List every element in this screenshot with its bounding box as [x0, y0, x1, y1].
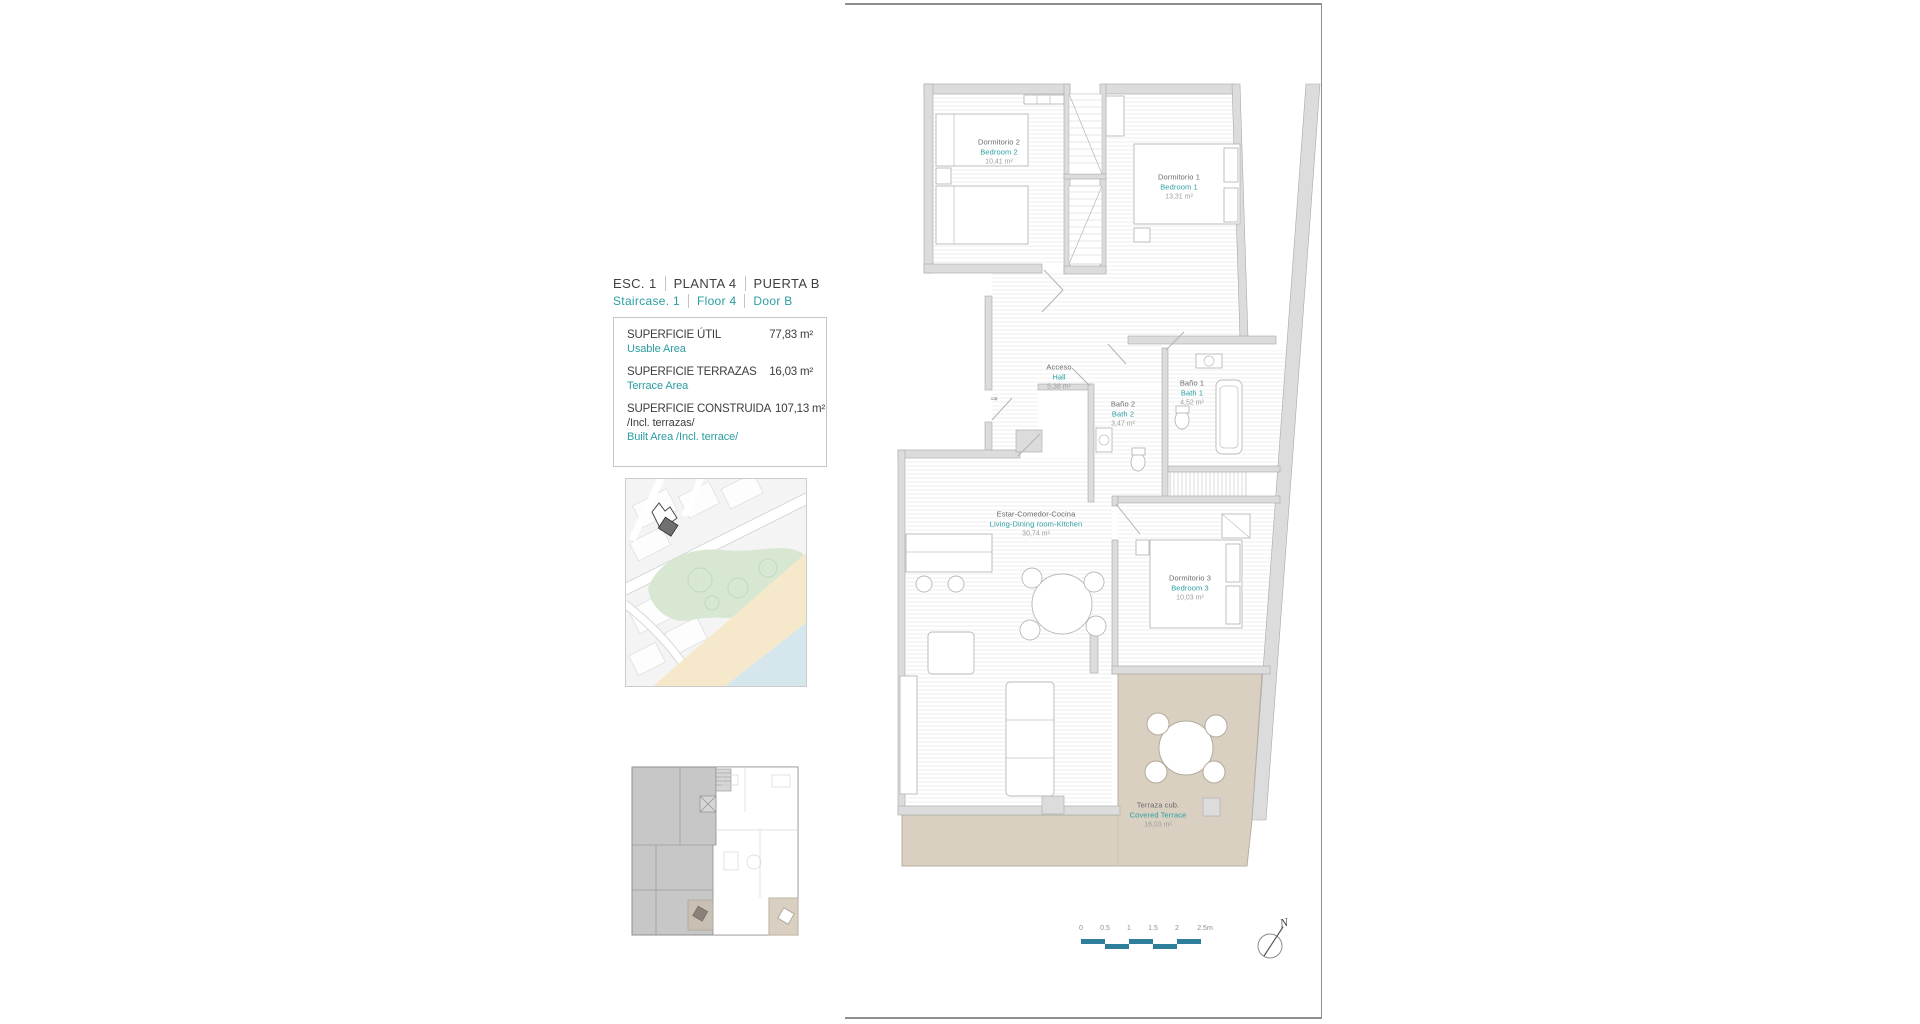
key-plan-graphics	[632, 767, 798, 935]
title-floor-en: Floor 4	[688, 294, 736, 308]
map-graphics	[620, 473, 812, 690]
title-staircase-en: Staircase. 1	[613, 294, 680, 308]
terrace-area-label: SUPERFICIE TERRAZAS	[627, 366, 757, 378]
built-area-sublabel-en: Built Area /Incl. terrace/	[627, 431, 813, 443]
terrace-area-value: 16,03 m²	[769, 366, 813, 378]
built-area-label: SUPERFICIE CONSTRUIDA	[627, 403, 771, 415]
scale-bar-segment	[1153, 944, 1177, 949]
page-title-english: Staircase. 1Floor 4Door B	[613, 294, 873, 308]
entrance-arrow-icon: ⇒	[990, 394, 998, 405]
scale-tick-label: 0	[1079, 925, 1083, 932]
scale-tick-label: 1	[1127, 925, 1131, 932]
usable-area-row: SUPERFICIE ÚTIL 77,83 m² Usable Area	[627, 329, 813, 355]
sheet-border-bottom	[845, 1017, 1322, 1019]
usable-area-label: SUPERFICIE ÚTIL	[627, 329, 721, 341]
title-block: ESC. 1PLANTA 4PUERTA B Staircase. 1Floor…	[613, 276, 873, 308]
title-door-es: PUERTA B	[745, 276, 820, 291]
built-area-row: SUPERFICIE CONSTRUIDA 107,13 m² /Incl. t…	[627, 403, 813, 443]
key-plan-thumbnail	[630, 765, 800, 945]
scale-tick-label: 2	[1175, 925, 1179, 932]
title-staircase-es: ESC. 1	[613, 276, 657, 291]
scale-tick-label: 2.5m	[1197, 925, 1213, 932]
scale-bar-segment	[1105, 944, 1129, 949]
scale-bar-segment	[1177, 939, 1201, 944]
area-summary-box: SUPERFICIE ÚTIL 77,83 m² Usable Area SUP…	[613, 317, 827, 467]
terrace-area-sublabel: Terrace Area	[627, 380, 813, 392]
scale-bar-segment	[1081, 939, 1105, 944]
terrace-area-row: SUPERFICIE TERRAZAS 16,03 m² Terrace Are…	[627, 366, 813, 392]
title-door-en: Door B	[744, 294, 792, 308]
usable-area-sublabel: Usable Area	[627, 343, 813, 355]
usable-area-value: 77,83 m²	[769, 329, 813, 341]
built-area-value: 107,13 m²	[775, 403, 825, 415]
page-title-spanish: ESC. 1PLANTA 4PUERTA B	[613, 276, 873, 291]
scale-bar-segment	[1129, 939, 1153, 944]
floor-plan-drawing	[880, 60, 1330, 880]
scale-tick-label: 0.5	[1100, 925, 1110, 932]
plan-sheet: ESC. 1PLANTA 4PUERTA B Staircase. 1Floor…	[0, 0, 1920, 1024]
location-map	[625, 478, 807, 687]
sheet-border-top	[845, 3, 1322, 5]
north-label: N	[1278, 915, 1291, 931]
built-area-sublabel-es: /Incl. terrazas/	[627, 417, 813, 429]
title-floor-es: PLANTA 4	[665, 276, 737, 291]
north-compass-icon: N	[1245, 908, 1305, 968]
scale-bar: 0 0.5 1 1.5 2 2.5m	[1075, 925, 1235, 951]
scale-tick-label: 1.5	[1148, 925, 1158, 932]
